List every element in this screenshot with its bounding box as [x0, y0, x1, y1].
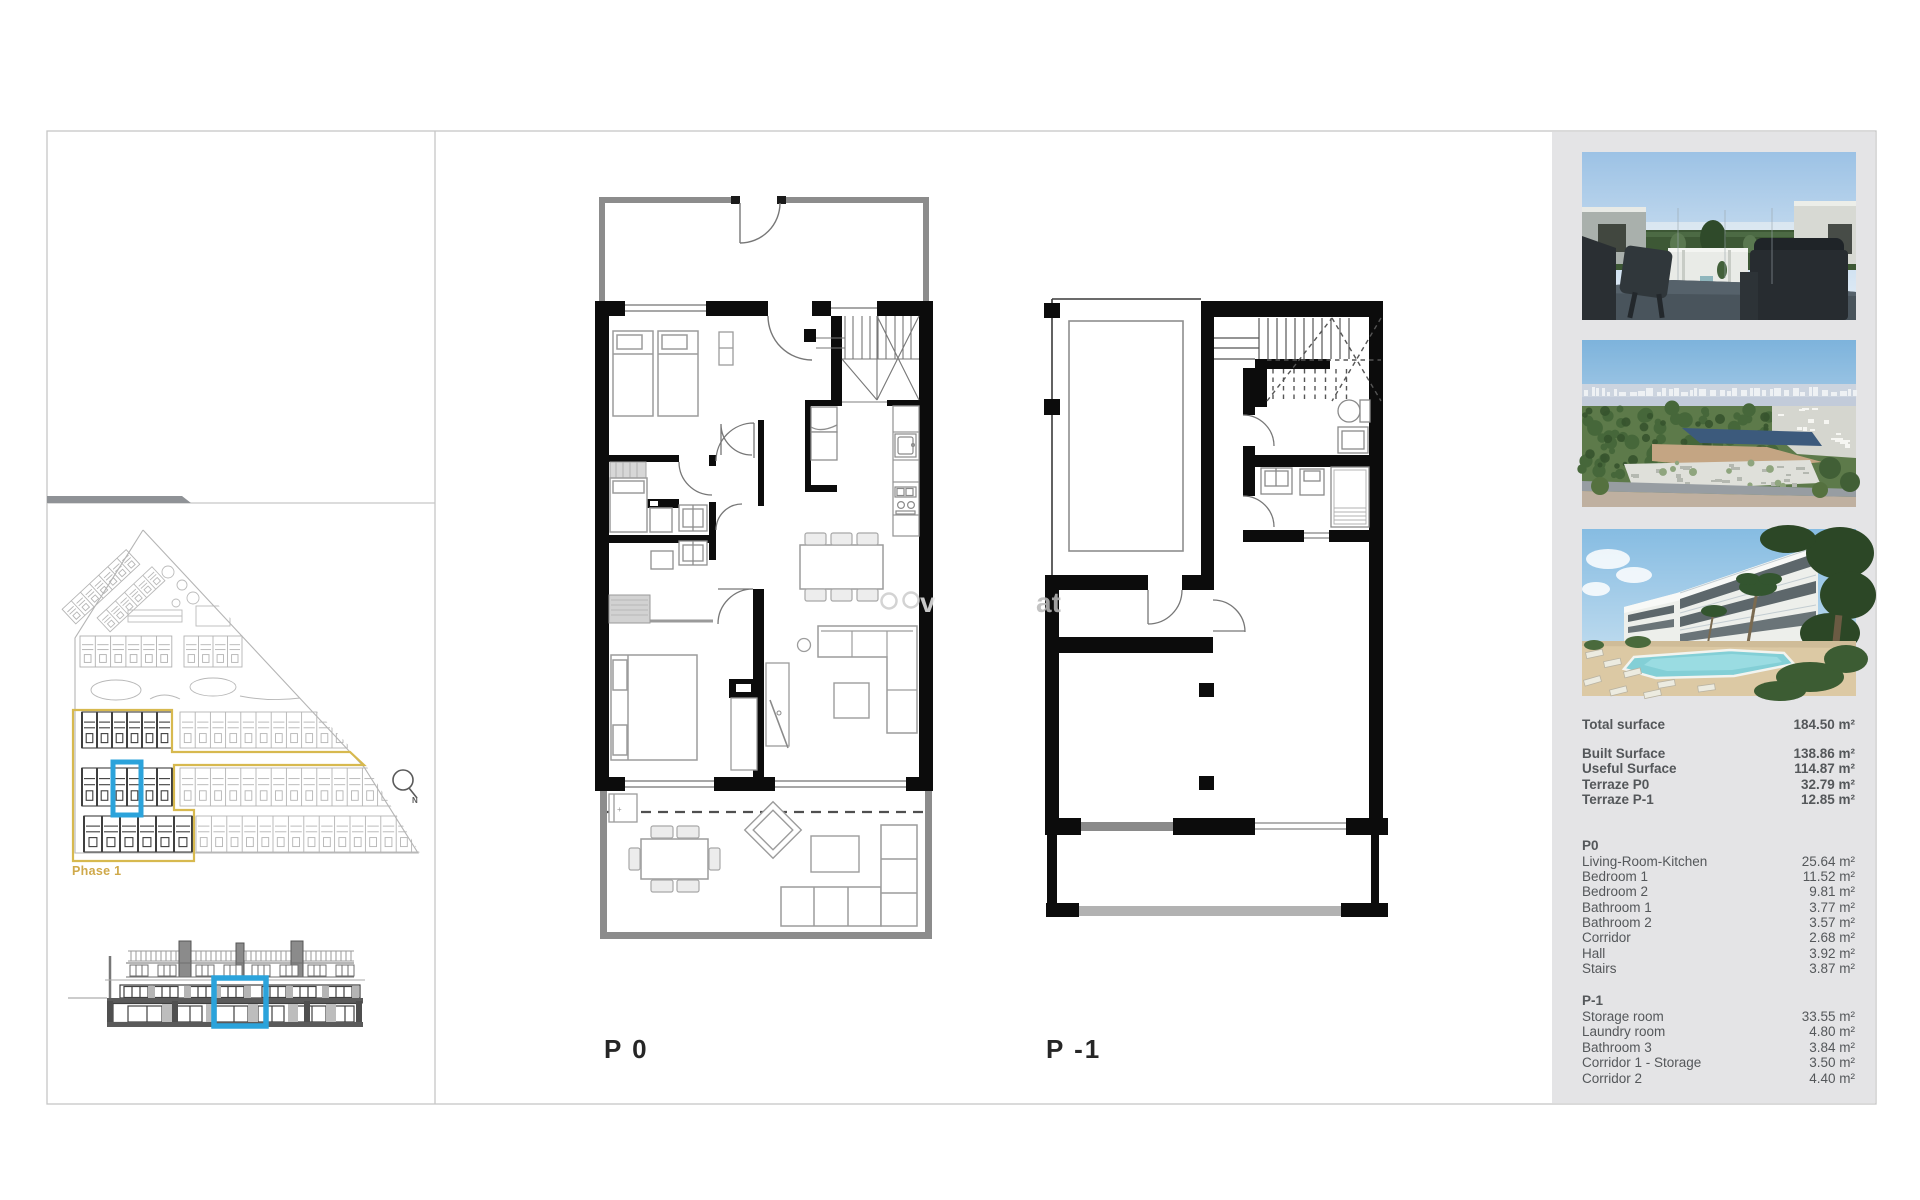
- svg-text:Laundry room: Laundry room: [1582, 1024, 1665, 1039]
- svg-text:P-1: P-1: [1582, 993, 1604, 1008]
- svg-text:3.57 m²: 3.57 m²: [1809, 915, 1855, 930]
- svg-text:4.80 m²: 4.80 m²: [1809, 1024, 1855, 1039]
- svg-text:2.68 m²: 2.68 m²: [1809, 930, 1855, 945]
- svg-text:Corridor: Corridor: [1582, 930, 1631, 945]
- svg-text:3.92 m²: 3.92 m²: [1809, 946, 1855, 961]
- svg-text:at: at: [1036, 587, 1061, 618]
- svg-text:3.77 m²: 3.77 m²: [1809, 900, 1855, 915]
- svg-text:Corridor 1 - Storage: Corridor 1 - Storage: [1582, 1055, 1701, 1070]
- svg-text:25.64 m²: 25.64 m²: [1802, 854, 1856, 869]
- svg-text:Hall: Hall: [1582, 946, 1605, 961]
- svg-text:Bedroom 1: Bedroom 1: [1582, 869, 1648, 884]
- svg-text:+: +: [617, 805, 622, 814]
- svg-text:P 0: P 0: [604, 1034, 649, 1064]
- svg-text:3.84 m²: 3.84 m²: [1809, 1040, 1855, 1055]
- svg-text:Bedroom 2: Bedroom 2: [1582, 884, 1648, 899]
- svg-text:Useful Surface: Useful Surface: [1582, 761, 1677, 776]
- svg-text:Stairs: Stairs: [1582, 961, 1617, 976]
- svg-text:9.81 m²: 9.81 m²: [1809, 884, 1855, 899]
- svg-text:32.79 m²: 32.79 m²: [1801, 777, 1856, 792]
- svg-text:3.50 m²: 3.50 m²: [1809, 1055, 1855, 1070]
- svg-text:4.40 m²: 4.40 m²: [1809, 1071, 1855, 1086]
- svg-text:3.87 m²: 3.87 m²: [1809, 961, 1855, 976]
- svg-text:12.85 m²: 12.85 m²: [1801, 792, 1856, 807]
- svg-text:138.86 m²: 138.86 m²: [1793, 746, 1855, 761]
- svg-text:v: v: [920, 587, 936, 618]
- svg-text:11.52 m²: 11.52 m²: [1803, 869, 1856, 884]
- svg-text:Bathroom 3: Bathroom 3: [1582, 1040, 1652, 1055]
- svg-text:Terraze P-1: Terraze P-1: [1582, 792, 1654, 807]
- svg-text:184.50 m²: 184.50 m²: [1793, 717, 1855, 732]
- svg-text:Bathroom 2: Bathroom 2: [1582, 915, 1652, 930]
- svg-text:Total surface: Total surface: [1582, 717, 1666, 732]
- svg-text:Living-Room-Kitchen: Living-Room-Kitchen: [1582, 854, 1707, 869]
- svg-text:Corridor 2: Corridor 2: [1582, 1071, 1642, 1086]
- svg-text:Bathroom 1: Bathroom 1: [1582, 900, 1652, 915]
- svg-text:P -1: P -1: [1046, 1034, 1101, 1064]
- svg-text:Terraze P0: Terraze P0: [1582, 777, 1649, 792]
- svg-text:Built Surface: Built Surface: [1582, 746, 1666, 761]
- svg-text:33.55 m²: 33.55 m²: [1802, 1009, 1856, 1024]
- svg-text:N: N: [412, 796, 418, 805]
- svg-text:114.87 m²: 114.87 m²: [1794, 761, 1855, 776]
- svg-text:P0: P0: [1582, 838, 1599, 853]
- svg-text:Phase 1: Phase 1: [72, 864, 121, 878]
- svg-text:Storage room: Storage room: [1582, 1009, 1664, 1024]
